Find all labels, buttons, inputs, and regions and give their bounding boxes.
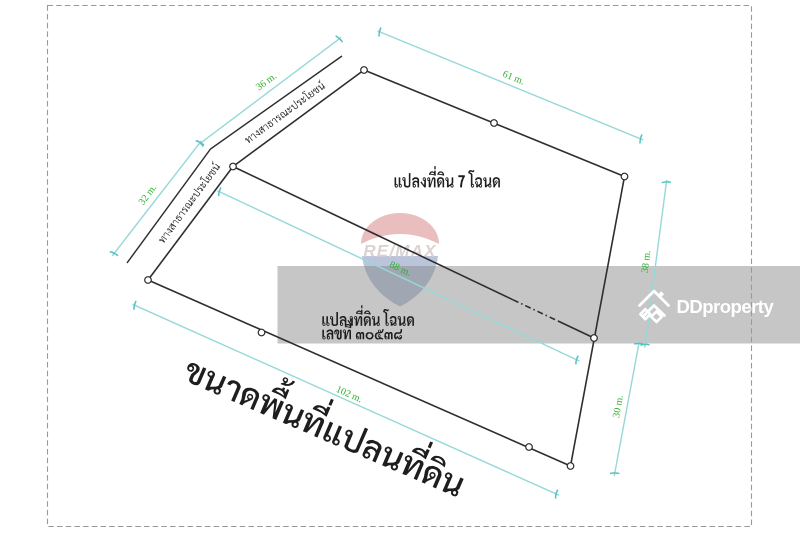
svg-text:DDproperty: DDproperty (677, 296, 775, 317)
